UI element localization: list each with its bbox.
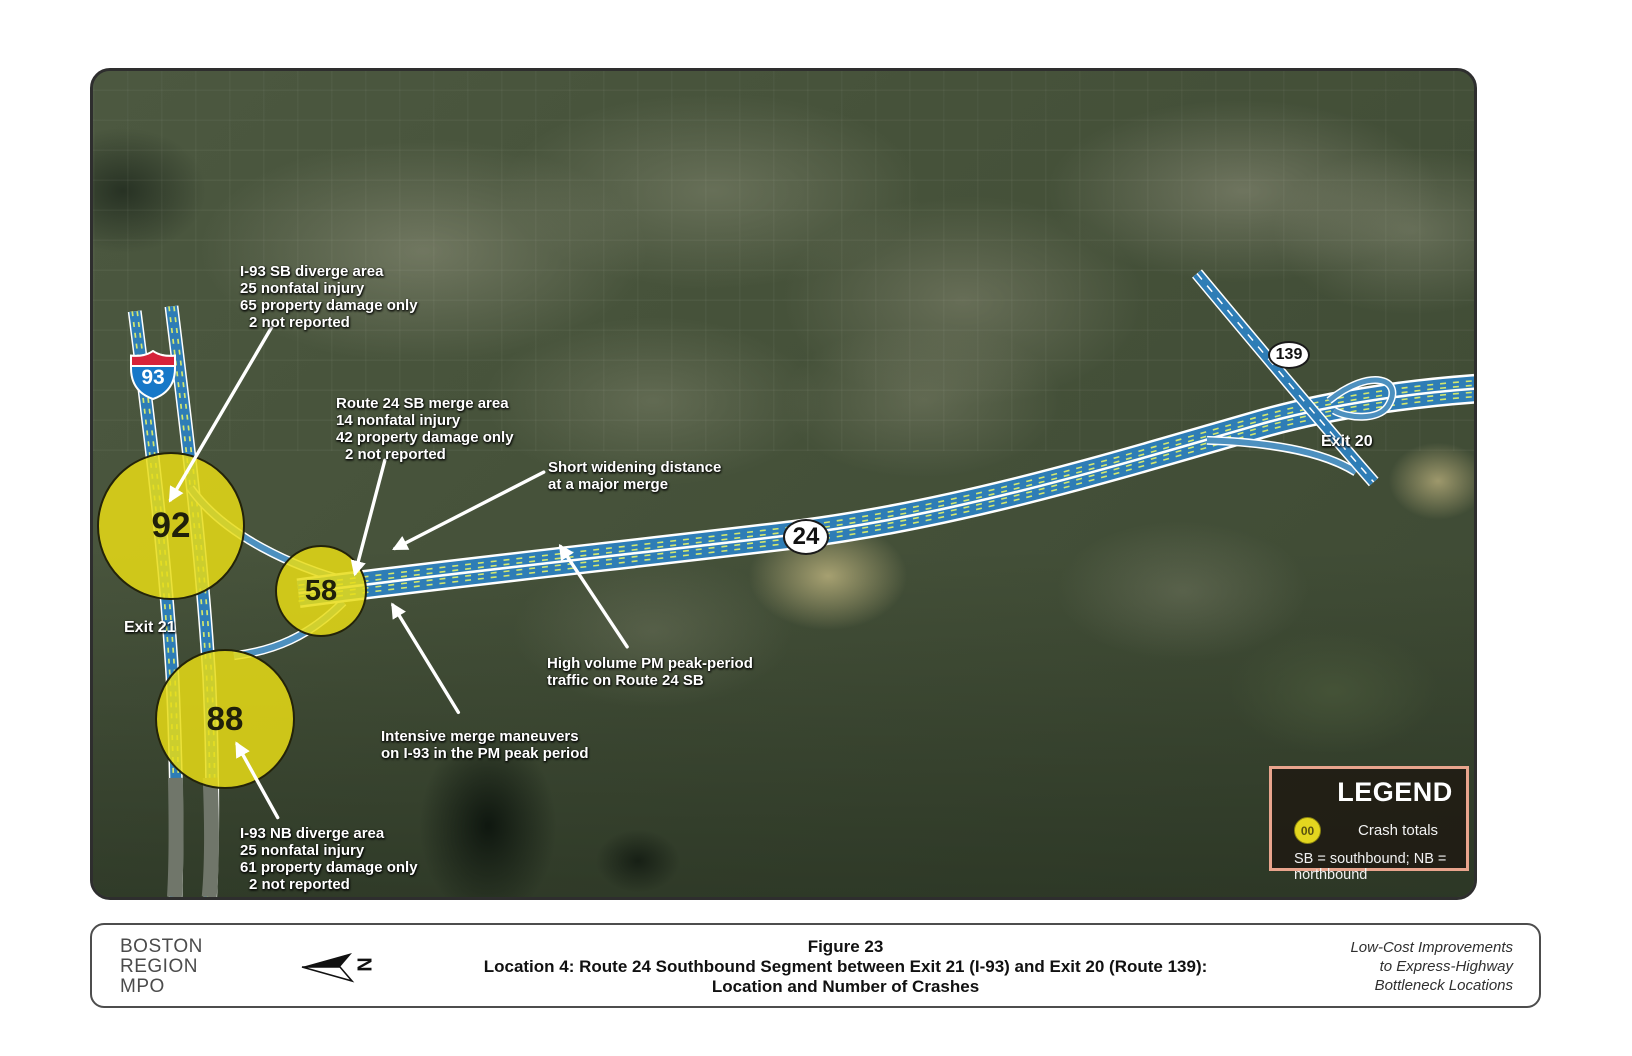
footer-bar: BOSTON REGION MPO N Figure 23 Location 4… bbox=[90, 923, 1541, 1008]
callout-line: High volume PM peak-period bbox=[547, 655, 753, 672]
legend-abbreviation-note: SB = southbound; NB = northbound bbox=[1294, 851, 1466, 883]
callout-line: 65 property damage only bbox=[240, 297, 418, 314]
callout-line: on I-93 in the PM peak period bbox=[381, 745, 589, 762]
arrow-short-widening bbox=[395, 472, 544, 548]
figure-title-line: Location 4: Route 24 Southbound Segment … bbox=[212, 957, 1479, 977]
callout-line: Short widening distance bbox=[548, 459, 721, 476]
legend-row: 00 Crash totals bbox=[1272, 817, 1466, 845]
callout-line: 14 nonfatal injury bbox=[336, 412, 514, 429]
callout-line: 2 not reported bbox=[240, 876, 418, 893]
exit21-label: Exit 21 bbox=[124, 619, 176, 637]
arrow-intensive-merge bbox=[393, 605, 459, 712]
callout-line: 61 property damage only bbox=[240, 859, 418, 876]
callout-line: 25 nonfatal injury bbox=[240, 280, 418, 297]
legend-symbol-text: 00 bbox=[1301, 824, 1314, 838]
callout-line: Intensive merge maneuvers bbox=[381, 728, 589, 745]
legend-item-label: Crash totals bbox=[1358, 822, 1438, 839]
callout-short-widening: Short widening distance at a major merge bbox=[548, 459, 721, 493]
route139-shield-number: 139 bbox=[1276, 346, 1303, 364]
callout-line: I-93 SB diverge area bbox=[240, 263, 418, 280]
arrow-sb-merge bbox=[355, 460, 385, 573]
map-panel: 92 58 88 bbox=[90, 68, 1477, 900]
callout-i93-sb-diverge: I-93 SB diverge area 25 nonfatal injury … bbox=[240, 263, 418, 331]
callout-line: traffic on Route 24 SB bbox=[547, 672, 753, 689]
callout-line: 2 not reported bbox=[336, 446, 514, 463]
report-note-line: to Express-Highway bbox=[1350, 957, 1513, 976]
callout-line: 2 not reported bbox=[240, 314, 418, 331]
report-note-line: Low-Cost Improvements bbox=[1350, 938, 1513, 957]
callout-high-volume: High volume PM peak-period traffic on Ro… bbox=[547, 655, 753, 689]
arrow-sb-diverge bbox=[170, 327, 271, 500]
report-note-line: Bottleneck Locations bbox=[1350, 976, 1513, 995]
crash-total-symbol-icon: 00 bbox=[1294, 817, 1321, 844]
legend-title: LEGEND bbox=[1272, 777, 1466, 808]
report-title-note: Low-Cost Improvements to Express-Highway… bbox=[1350, 938, 1513, 995]
figure-number: Figure 23 bbox=[212, 937, 1479, 957]
exit20-label: Exit 20 bbox=[1321, 433, 1373, 451]
callout-line: 25 nonfatal injury bbox=[240, 842, 418, 859]
org-line: BOSTON bbox=[120, 937, 203, 957]
callout-line: at a major merge bbox=[548, 476, 721, 493]
legend: LEGEND 00 Crash totals SB = southbound; … bbox=[1269, 766, 1469, 871]
callout-line: Route 24 SB merge area bbox=[336, 395, 514, 412]
figure-page: 92 58 88 bbox=[0, 0, 1632, 1056]
arrow-high-volume bbox=[561, 547, 628, 647]
org-line: REGION bbox=[120, 957, 203, 977]
route24-shield: 24 bbox=[783, 519, 829, 555]
figure-subtitle-line: Location and Number of Crashes bbox=[212, 977, 1479, 997]
boston-region-mpo-logo: BOSTON REGION MPO bbox=[120, 937, 203, 997]
i93-interstate-shield: 93 bbox=[130, 350, 176, 400]
callout-intensive-merge: Intensive merge maneuvers on I-93 in the… bbox=[381, 728, 589, 762]
callout-route24-sb-merge: Route 24 SB merge area 14 nonfatal injur… bbox=[336, 395, 514, 463]
callout-arrows bbox=[93, 71, 1474, 897]
i93-shield-number: 93 bbox=[130, 366, 176, 390]
figure-caption: Figure 23 Location 4: Route 24 Southboun… bbox=[212, 937, 1479, 997]
callout-i93-nb-diverge: I-93 NB diverge area 25 nonfatal injury … bbox=[240, 825, 418, 893]
route139-shield: 139 bbox=[1268, 341, 1310, 369]
callout-line: I-93 NB diverge area bbox=[240, 825, 418, 842]
org-line: MPO bbox=[120, 977, 203, 997]
arrow-nb-diverge bbox=[237, 744, 278, 817]
callout-line: 42 property damage only bbox=[336, 429, 514, 446]
route24-shield-number: 24 bbox=[793, 523, 820, 551]
